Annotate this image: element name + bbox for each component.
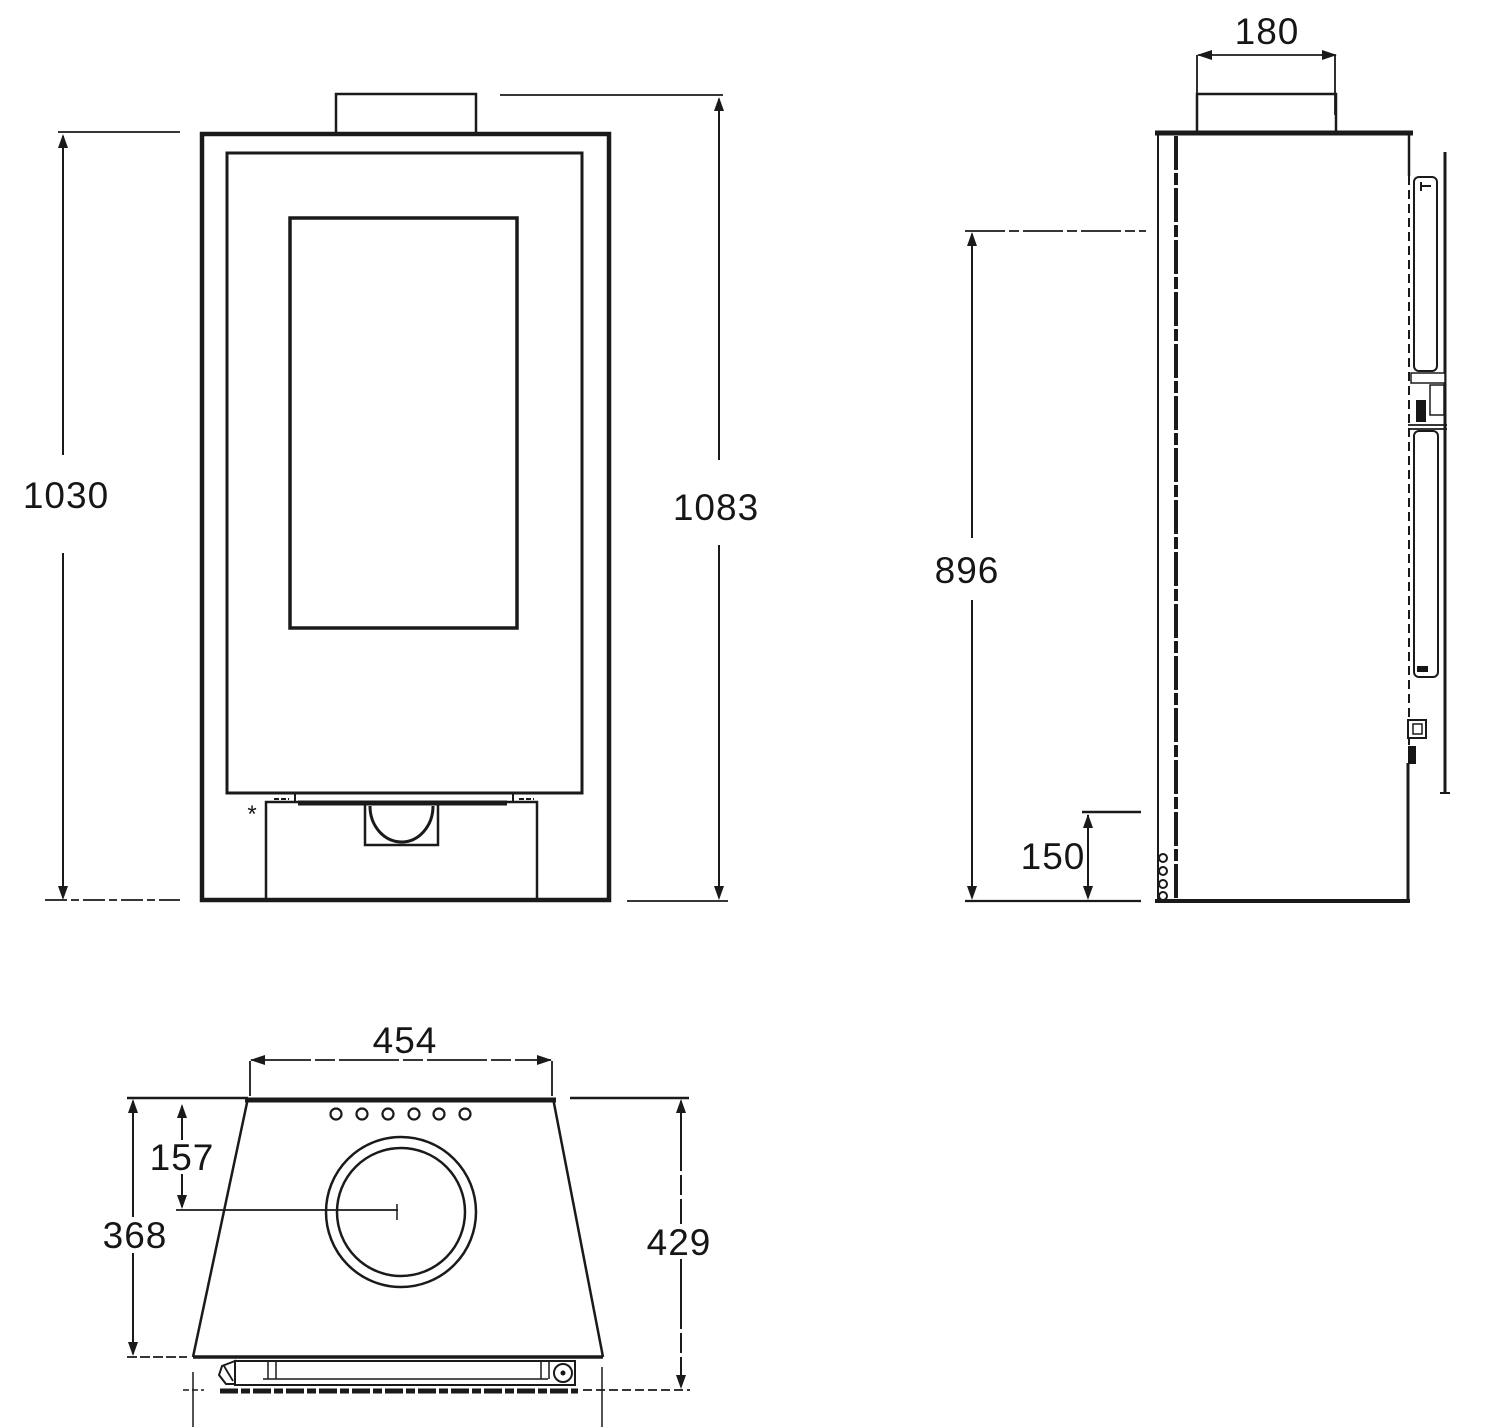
arrow-down bbox=[1083, 886, 1093, 900]
dim-flue-collar-width: 180 bbox=[1197, 11, 1337, 115]
front-door-frame bbox=[227, 153, 582, 793]
front-body-outline bbox=[202, 134, 609, 900]
front-door-glass bbox=[290, 218, 517, 628]
dim-label-front-total-height: 1083 bbox=[673, 487, 759, 528]
side-hinge-plate bbox=[1411, 373, 1445, 383]
front-handle-arc bbox=[370, 806, 433, 842]
arrow-down bbox=[676, 1375, 686, 1389]
front-footnote-mark: * bbox=[247, 801, 256, 828]
top-air-hole bbox=[460, 1109, 471, 1120]
arrow-down bbox=[177, 1195, 187, 1209]
top-flue-inner-circle bbox=[337, 1148, 465, 1276]
top-air-hole bbox=[434, 1109, 445, 1120]
ext-line bbox=[250, 1061, 552, 1096]
top-view bbox=[183, 1098, 603, 1427]
dim-label-top-front-depth: 429 bbox=[647, 1222, 712, 1263]
dim-front-total-height: 1083 bbox=[500, 95, 759, 901]
dim-label-flue-center-offset: 157 bbox=[150, 1137, 215, 1178]
arrow-left bbox=[250, 1055, 265, 1065]
dim-label-flue-collar-width: 180 bbox=[1235, 11, 1300, 52]
top-flue-outer-circle bbox=[326, 1137, 476, 1287]
side-view bbox=[1155, 94, 1450, 901]
dim-top-front-depth: 429 bbox=[583, 1099, 711, 1390]
arrow-up bbox=[58, 134, 68, 148]
top-air-hole bbox=[383, 1109, 394, 1120]
side-air-hole bbox=[1159, 867, 1167, 875]
dim-label-front-body-height: 1030 bbox=[23, 475, 109, 516]
dim-label-side-rear-height: 896 bbox=[935, 550, 1000, 591]
technical-drawing: * 1030 1083 bbox=[0, 0, 1500, 1427]
arrow-right bbox=[537, 1055, 552, 1065]
arrow-down bbox=[967, 886, 977, 900]
stove-dimension-diagram: * 1030 1083 bbox=[0, 0, 1500, 1427]
side-hinge-bracket-lower bbox=[1414, 431, 1438, 677]
top-door-hinge-pin bbox=[561, 1371, 566, 1376]
arrow-down bbox=[714, 886, 724, 900]
front-base-drawer bbox=[266, 802, 537, 900]
arrow-down bbox=[58, 886, 68, 900]
ext-line bbox=[1197, 55, 1335, 115]
top-air-hole bbox=[357, 1109, 368, 1120]
dim-label-top-rear-width: 454 bbox=[373, 1020, 438, 1061]
dim-top-rear-width: 454 bbox=[250, 1020, 552, 1096]
top-right-slant bbox=[553, 1098, 603, 1357]
dim-label-top-depth: 368 bbox=[103, 1215, 168, 1256]
side-air-hole bbox=[1159, 854, 1167, 862]
side-hinge-tick bbox=[1417, 666, 1428, 672]
side-air-hole bbox=[1159, 880, 1167, 888]
dim-side-rear-height: 896 bbox=[935, 231, 1146, 901]
arrow-left bbox=[1197, 50, 1212, 60]
dim-side-outlet-height: 150 bbox=[1021, 812, 1141, 900]
arrow-down bbox=[128, 1342, 138, 1356]
arrow-up bbox=[676, 1099, 686, 1113]
top-air-hole bbox=[331, 1109, 342, 1120]
top-air-hole bbox=[409, 1109, 420, 1120]
front-flue-collar bbox=[336, 94, 476, 132]
dim-front-body-height: 1030 bbox=[23, 132, 180, 900]
side-flue-collar bbox=[1197, 94, 1336, 132]
side-hinge-cross-lines bbox=[1408, 425, 1447, 429]
dim-label-side-outlet-height: 150 bbox=[1021, 836, 1086, 877]
side-hinge-bracket-upper bbox=[1414, 177, 1437, 371]
top-door-bar bbox=[235, 1361, 575, 1385]
side-latch-outer bbox=[1408, 720, 1426, 738]
arrow-up bbox=[967, 232, 977, 246]
arrow-up bbox=[177, 1104, 187, 1118]
side-air-hole bbox=[1159, 892, 1167, 900]
front-view: * bbox=[202, 94, 609, 900]
side-hinge-pin bbox=[1416, 400, 1426, 422]
arrow-up bbox=[128, 1099, 138, 1113]
arrow-up bbox=[1083, 814, 1093, 828]
arrow-up bbox=[714, 97, 724, 111]
side-hinge-block bbox=[1430, 385, 1444, 415]
side-latch-catch bbox=[1408, 746, 1416, 764]
